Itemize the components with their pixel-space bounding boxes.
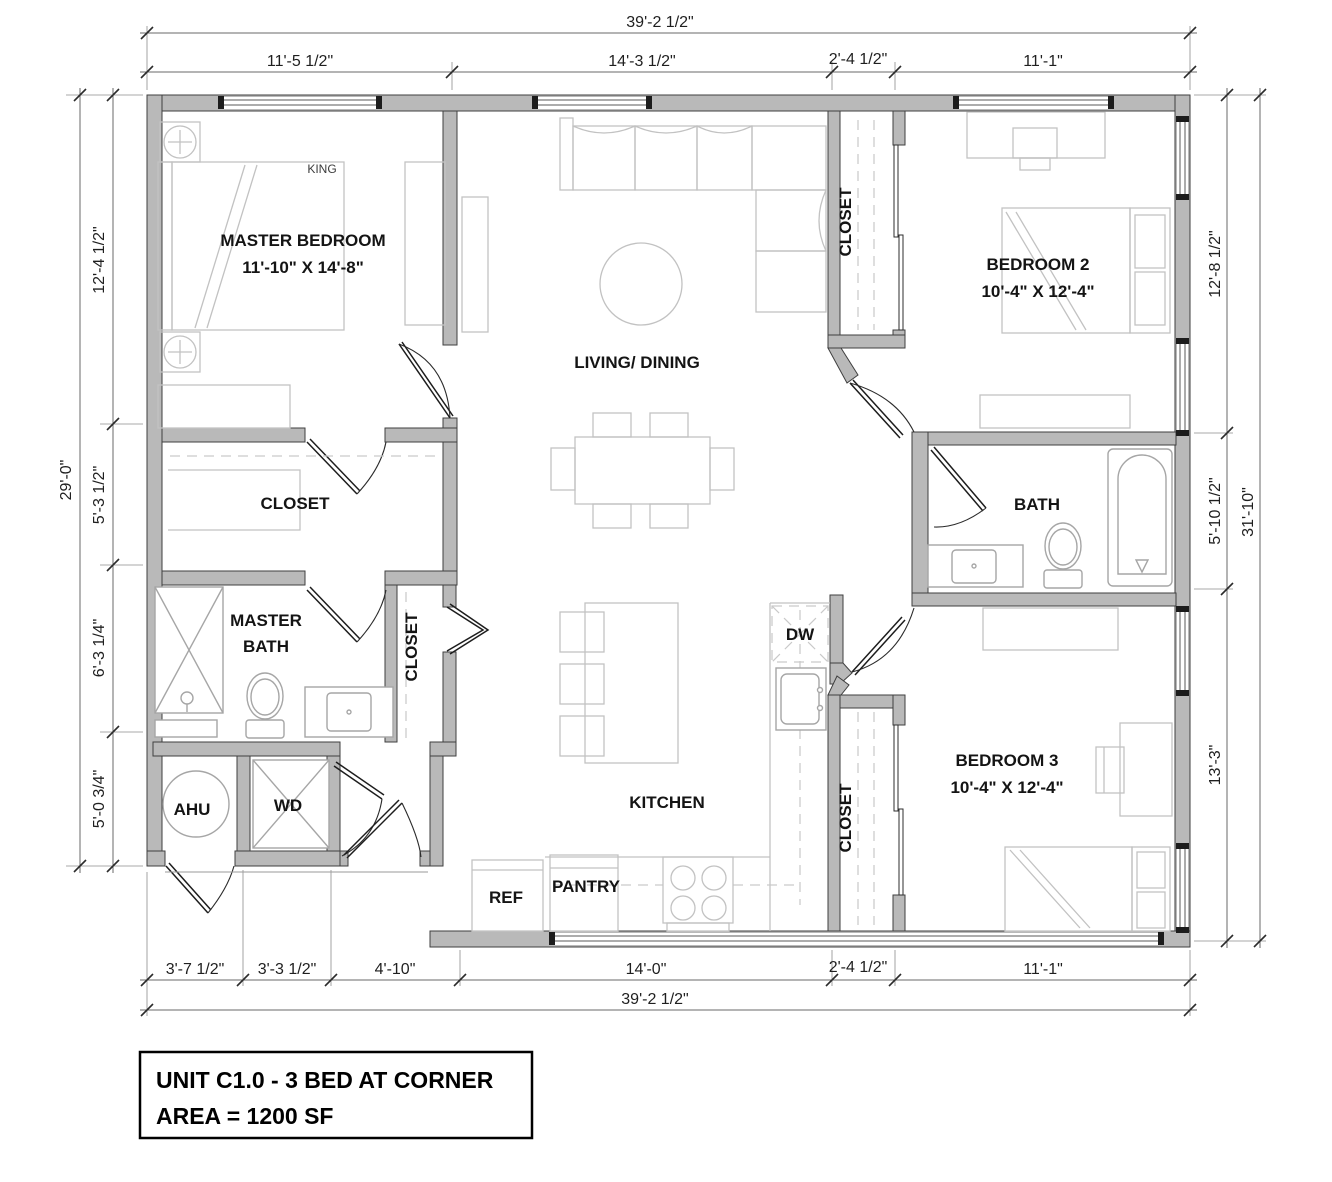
door-bedroom3 [852,608,914,675]
label-wd: WD [274,796,302,815]
bedroom2-desk [967,112,1105,170]
kitchen-sink [776,668,826,730]
door-master-bath [307,587,386,642]
bathtub [1108,449,1172,586]
dim-top-2: 14'-3 1/2" [608,53,675,70]
label-living-dining: LIVING/ DINING [574,353,700,372]
door-bifold-pocket-closet [447,604,488,654]
label-master-bath-2: BATH [243,637,289,656]
dim-right-2: 5'-10 1/2" [1207,477,1224,544]
label-pantry: PANTRY [552,877,621,896]
dim-right-1: 12'-8 1/2" [1207,230,1224,297]
bedroom3-dresser [983,608,1118,650]
dim-top-3: 2'-4 1/2" [829,51,888,68]
living-media-console [462,197,488,332]
master-shower [155,587,223,737]
dim-right-overall: 31'-10" [1240,487,1257,537]
dim-bottom-2: 3'-3 1/2" [258,961,317,978]
window-living [532,96,652,109]
door-walkin-closet [307,439,386,494]
floor-plan-drawing: 39'-2 1/2" 11'-5 1/2" 14'-3 1/2" 2'-4 1/… [0,0,1332,1182]
label-pocket-closet: CLOSET [402,612,421,682]
label-bedroom2-size: 10'-4" X 12'-4" [981,282,1094,301]
label-kitchen: KITCHEN [629,793,705,812]
label-walkin-closet: CLOSET [261,494,331,513]
dim-right-3: 13'-3" [1207,745,1224,786]
label-bedroom3-size: 10'-4" X 12'-4" [950,778,1063,797]
bedroom3-bed [1005,847,1170,931]
floor-plan-canvas: 39'-2 1/2" 11'-5 1/2" 14'-3 1/2" 2'-4 1/… [0,0,1332,1182]
dim-bottom-5: 2'-4 1/2" [829,959,888,976]
dim-top-4: 11'-1" [1023,53,1063,70]
dining-table-and-chairs [551,413,734,528]
dim-bottom-overall: 39'-2 1/2" [621,991,688,1008]
label-ref: REF [489,888,523,907]
door-wd [334,762,384,856]
bedroom2-closet-rods [858,120,874,330]
dim-bottom-4: 14'-0" [626,961,667,978]
walkin-closet-shelves [168,456,438,530]
master-vanity [305,687,393,737]
door-master-bedroom [399,342,453,418]
window-master-bedroom [218,96,382,109]
door-bath [931,447,986,527]
master-low-dresser [158,385,290,428]
master-dresser [405,162,445,325]
dim-left-2: 5'-3 1/2" [91,466,108,525]
unit-title: UNIT C1.0 - 3 BED AT CORNER [156,1067,494,1093]
bedroom2-dresser [980,395,1130,428]
bedroom3-desk [1096,723,1172,816]
label-master-bath-1: MASTER [230,611,302,630]
dim-left-3: 6'-3 1/4" [91,619,108,678]
title-block: UNIT C1.0 - 3 BED AT CORNER AREA = 1200 … [140,1052,532,1138]
kitchen-island [560,603,678,763]
range-stove [663,857,733,931]
label-bedroom2: BEDROOM 2 [987,255,1090,274]
window-bedroom2-right-1 [1176,116,1189,200]
dimension-extension-lines [66,26,1266,1016]
dim-left-1: 12'-4 1/2" [91,226,108,293]
door-ahu-exterior [166,863,234,913]
label-bath: BATH [1014,495,1060,514]
label-bedroom2-closet: CLOSET [836,187,855,257]
round-coffee-table [600,243,682,325]
window-bedroom3-right-1 [1176,606,1189,696]
door-entry [344,800,421,858]
bath-vanity [928,545,1023,587]
door-bedroom2 [850,380,914,438]
sliding-door-bedroom3-closet [894,725,903,895]
label-king-bed: KING [307,162,336,176]
dim-top-1: 11'-5 1/2" [267,53,333,70]
label-master-bedroom: MASTER BEDROOM [220,231,385,250]
window-bedroom2-right-2 [1176,338,1189,436]
window-bedroom2-top [953,96,1114,109]
label-dw: DW [786,625,815,644]
dim-top-overall: 39'-2 1/2" [626,14,693,31]
window-bedroom3-right-2 [1176,843,1189,933]
label-bedroom3-closet: CLOSET [836,783,855,853]
label-ahu: AHU [174,800,211,819]
window-bottom-band [549,932,1164,945]
bath-toilet [1044,523,1082,588]
unit-area: AREA = 1200 SF [156,1103,333,1129]
dim-bottom-6: 11'-1" [1023,961,1063,978]
dim-left-overall: 29'-0" [58,460,75,501]
dim-bottom-1: 3'-7 1/2" [166,961,225,978]
label-bedroom3: BEDROOM 3 [956,751,1059,770]
windows [218,96,1189,945]
label-master-bedroom-size: 11'-10" X 14'-8" [242,258,364,277]
master-toilet [246,673,284,738]
dim-left-4: 5'-0 3/4" [91,770,108,829]
dim-bottom-3: 4'-10" [375,961,416,978]
dimension-lines [74,27,1266,1016]
bedroom3-closet-rods [858,712,874,925]
sliding-door-bedroom2-closet [894,145,903,330]
